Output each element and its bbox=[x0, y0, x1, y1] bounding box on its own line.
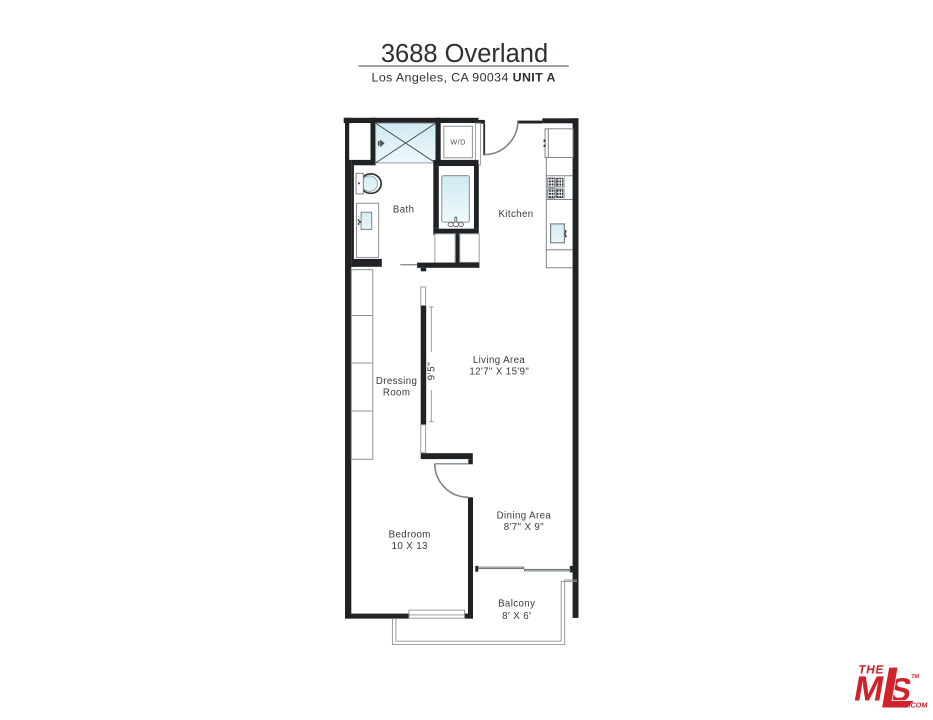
svg-text:.COM: .COM bbox=[908, 701, 928, 710]
svg-text:Bath: Bath bbox=[393, 205, 415, 216]
svg-text:Bedroom: Bedroom bbox=[389, 530, 431, 541]
svg-text:8'7" X 9": 8'7" X 9" bbox=[504, 522, 544, 533]
svg-text:9'5": 9'5" bbox=[427, 362, 438, 381]
svg-text:TM: TM bbox=[911, 674, 920, 680]
svg-text:Living Area: Living Area bbox=[473, 355, 526, 366]
svg-text:Balcony: Balcony bbox=[498, 599, 535, 610]
svg-text:Kitchen: Kitchen bbox=[498, 209, 533, 220]
svg-text:12'7" X 15'9": 12'7" X 15'9" bbox=[469, 367, 529, 378]
svg-text:Room: Room bbox=[383, 387, 410, 398]
svg-text:W/D: W/D bbox=[450, 138, 465, 147]
svg-text:Dining Area: Dining Area bbox=[497, 510, 552, 521]
svg-text:10 X 13: 10 X 13 bbox=[392, 541, 428, 552]
svg-text:8' X 6': 8' X 6' bbox=[502, 611, 531, 622]
svg-text:Dressing: Dressing bbox=[376, 376, 417, 387]
svg-text:Los Angeles, CA 90034 UNIT A: Los Angeles, CA 90034 UNIT A bbox=[372, 71, 556, 85]
svg-text:3688 Overland: 3688 Overland bbox=[381, 40, 548, 68]
